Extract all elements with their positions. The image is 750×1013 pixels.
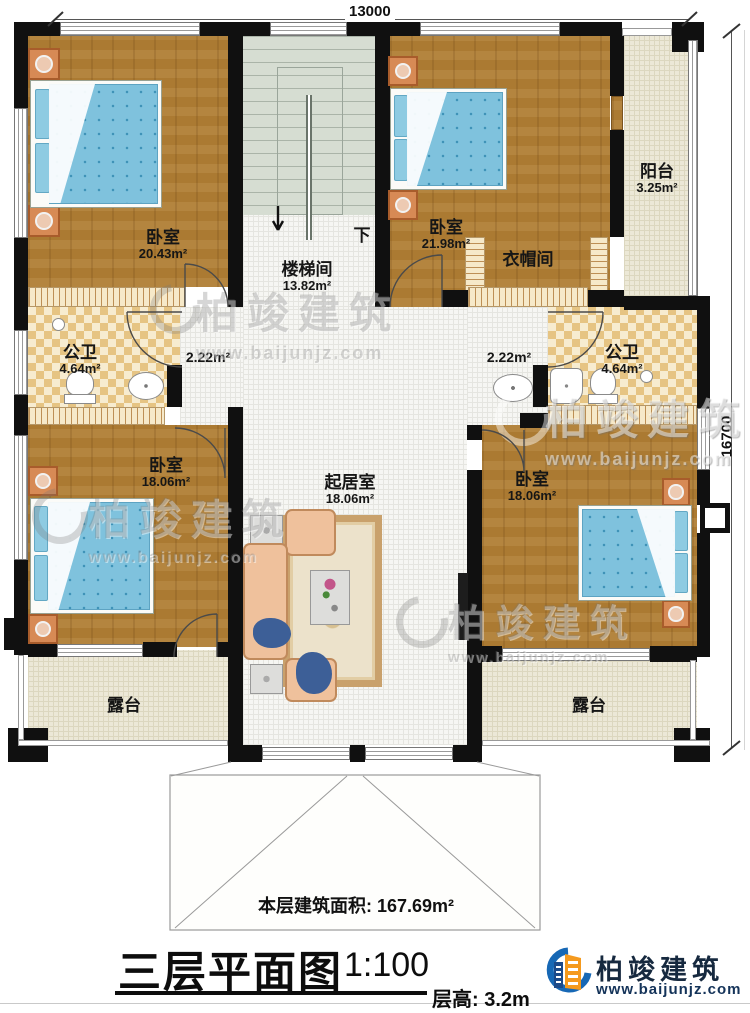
watermark: 柏竣建筑www.baijunjz.com	[196, 280, 400, 364]
person-figure	[253, 618, 291, 648]
terrace-right-railing-side	[690, 660, 696, 740]
room-label-bedroom-tr: 卧室21.98m²	[422, 218, 470, 252]
room-label-living-room: 起居室18.06m²	[325, 473, 376, 507]
person-figure	[296, 652, 332, 694]
dimension-top-value: 13000	[345, 3, 395, 20]
floor-area-annotation: 本层建筑面积: 167.69m²	[258, 892, 454, 918]
balcony-top-railing	[622, 28, 672, 36]
room-label-bath-left: 公卫4.64m²	[59, 343, 100, 377]
nightstand	[388, 56, 418, 86]
window-left-bedroom-tl	[14, 108, 28, 238]
balcony-door-leaf	[611, 96, 623, 130]
window-bay-right	[365, 747, 453, 760]
bed	[30, 80, 162, 208]
nightstand	[662, 600, 690, 628]
floor-height-label: 层高: 3.2m	[432, 983, 530, 1012]
nightstand	[28, 205, 60, 237]
watermark: 柏竣建筑www.baijunjz.com	[88, 486, 292, 567]
terrace-left-railing-side	[18, 655, 24, 740]
room-label-bath-right: 公卫4.64m²	[601, 343, 642, 377]
toilet-tank	[64, 394, 96, 404]
room-label-terrace-right: 露台	[572, 696, 606, 715]
brand-logo-icon	[544, 944, 592, 1000]
loveseat-sofa	[285, 509, 336, 556]
nightstand	[28, 48, 60, 80]
bed	[390, 88, 507, 190]
balcony-railing-right	[688, 40, 698, 296]
nightstand	[662, 478, 690, 506]
window-top-stairwell	[270, 22, 347, 36]
window-left-bedroom-bl	[14, 435, 28, 560]
cloakroom-wardrobe-bottom	[468, 287, 588, 307]
chimney	[700, 503, 730, 533]
nightstand	[388, 190, 418, 220]
room-label-cloakroom: 衣帽间	[503, 250, 554, 269]
sink	[128, 372, 164, 400]
room-label-bedroom-br: 卧室18.06m²	[508, 470, 556, 504]
window-top-bedroom-tl	[60, 22, 200, 36]
footer-divider	[0, 1003, 750, 1004]
brand-url: www.baijunjz.com	[596, 981, 741, 998]
stair-center-rail	[306, 95, 312, 240]
watermark: 柏竣建筑www.baijunjz.com	[545, 386, 749, 470]
room-label-bedroom-tl: 卧室20.43m²	[139, 228, 187, 262]
drawing-scale: 1:100	[344, 946, 429, 985]
window-bedroom-bl-terrace	[57, 644, 143, 657]
window-left-bath	[14, 330, 28, 395]
window-top-bedroom-tr	[420, 22, 560, 36]
watermark: 柏竣建筑www.baijunjz.com	[448, 592, 636, 666]
wardrobe-above-bedroom-bl	[28, 407, 165, 425]
nightstand	[28, 614, 58, 644]
coffee-table	[310, 570, 350, 625]
room-label-terrace-left: 露台	[107, 696, 141, 715]
room-label-hall-right: 2.22m²	[487, 350, 531, 366]
bed	[578, 505, 692, 601]
title-underline	[115, 991, 427, 995]
stair-direction-label: 下	[354, 226, 371, 245]
floor-plan-page: 卧室20.43m² 楼梯间13.82m² 下 卧室21.98m² 衣帽间 阳台3…	[0, 0, 750, 1013]
terrace-right-railing-bottom	[482, 740, 710, 746]
room-label-balcony: 阳台3.25m²	[636, 162, 677, 196]
window-bay-left	[262, 747, 350, 760]
room-label-bedroom-bl: 卧室18.06m²	[142, 456, 190, 490]
ceiling-lamp	[52, 318, 65, 331]
terrace-left-railing-bottom	[18, 740, 228, 746]
side-table	[250, 664, 283, 694]
